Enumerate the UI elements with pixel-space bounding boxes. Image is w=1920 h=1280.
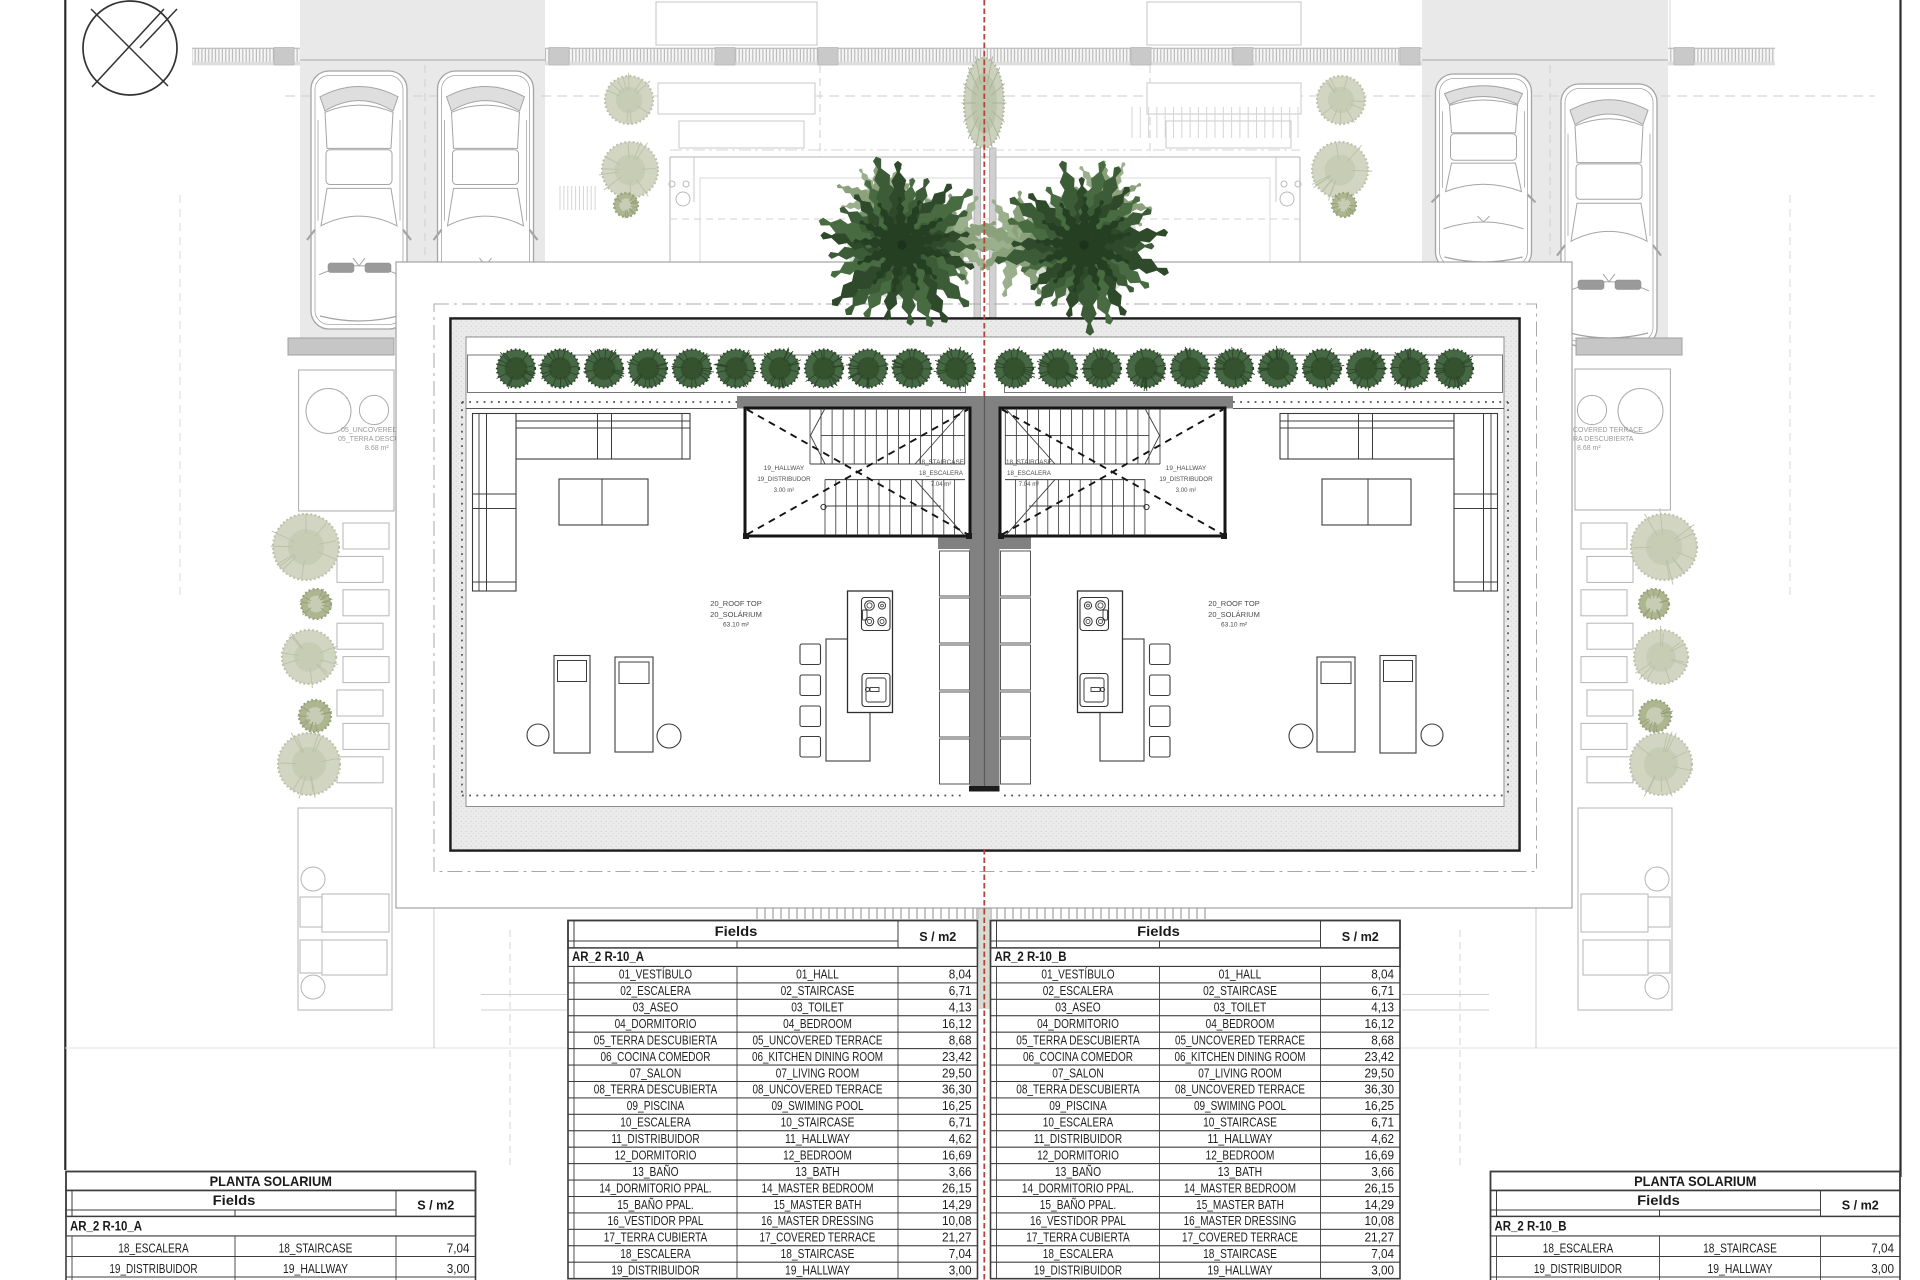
svg-text:11_DISTRIBUIDOR: 11_DISTRIBUIDOR <box>1034 1132 1122 1146</box>
svg-text:19_DISTRIBUIDOR: 19_DISTRIBUIDOR <box>1034 1263 1122 1277</box>
svg-text:S / m2: S / m2 <box>1342 929 1379 944</box>
svg-text:17_TERRA CUBIERTA: 17_TERRA CUBIERTA <box>1026 1231 1130 1245</box>
svg-text:6,71: 6,71 <box>1371 1116 1394 1130</box>
svg-text:03_TOILET: 03_TOILET <box>791 1001 844 1015</box>
svg-text:16,12: 16,12 <box>942 1017 972 1031</box>
svg-text:18_ESCALERA: 18_ESCALERA <box>118 1241 189 1255</box>
svg-text:19_DISTRIBUDOR: 19_DISTRIBUDOR <box>1159 476 1213 483</box>
svg-text:19_HALLWAY: 19_HALLWAY <box>764 465 805 472</box>
svg-text:8.68 m²: 8.68 m² <box>365 445 389 452</box>
svg-text:6,71: 6,71 <box>1371 984 1394 998</box>
svg-text:14,29: 14,29 <box>942 1198 972 1212</box>
svg-text:08_TERRA DESCUBIERTA: 08_TERRA DESCUBIERTA <box>1016 1083 1140 1097</box>
svg-text:3,66: 3,66 <box>1371 1165 1394 1179</box>
svg-text:7,04: 7,04 <box>949 1247 972 1261</box>
svg-text:7,04: 7,04 <box>1371 1247 1394 1261</box>
svg-text:36,30: 36,30 <box>1365 1083 1395 1097</box>
svg-text:14_MASTER BEDROOM: 14_MASTER BEDROOM <box>1184 1181 1296 1195</box>
svg-text:16,69: 16,69 <box>1365 1148 1395 1162</box>
svg-text:29,50: 29,50 <box>1365 1066 1395 1080</box>
svg-text:7,04: 7,04 <box>1871 1241 1894 1255</box>
svg-text:26,15: 26,15 <box>1365 1181 1395 1195</box>
svg-text:10_STAIRCASE: 10_STAIRCASE <box>1203 1116 1277 1130</box>
svg-text:23,42: 23,42 <box>942 1050 972 1064</box>
svg-text:10_ESCALERA: 10_ESCALERA <box>1043 1116 1114 1130</box>
svg-text:05_UNCOVERED TERRACE: 05_UNCOVERED TERRACE <box>1175 1033 1305 1047</box>
svg-text:04_DORMITORIO: 04_DORMITORIO <box>615 1017 697 1031</box>
svg-text:20_ROOF TOP: 20_ROOF TOP <box>1208 599 1259 608</box>
svg-text:19_DISTRIBUIDOR: 19_DISTRIBUIDOR <box>611 1263 699 1277</box>
svg-text:8,04: 8,04 <box>949 968 972 982</box>
svg-text:15_BAÑO PPAL.: 15_BAÑO PPAL. <box>1040 1198 1116 1212</box>
svg-text:01_VESTÍBULO: 01_VESTÍBULO <box>1041 967 1114 982</box>
svg-text:09_PISCINA: 09_PISCINA <box>1049 1099 1107 1113</box>
svg-text:8.68 m²: 8.68 m² <box>1577 445 1601 452</box>
svg-text:11_HALLWAY: 11_HALLWAY <box>785 1132 851 1146</box>
svg-text:10_ESCALERA: 10_ESCALERA <box>620 1116 691 1130</box>
svg-text:7,04: 7,04 <box>447 1241 470 1255</box>
svg-text:4,62: 4,62 <box>1371 1132 1394 1146</box>
svg-text:16_VESTIDOR PPAL: 16_VESTIDOR PPAL <box>608 1214 704 1228</box>
svg-text:02_STAIRCASE: 02_STAIRCASE <box>781 984 855 998</box>
svg-text:17_TERRA CUBIERTA: 17_TERRA CUBIERTA <box>604 1231 708 1245</box>
svg-text:02_STAIRCASE: 02_STAIRCASE <box>1203 984 1277 998</box>
svg-text:09_SWIMING POOL: 09_SWIMING POOL <box>1194 1099 1286 1113</box>
svg-text:36,30: 36,30 <box>942 1083 972 1097</box>
svg-text:18_ESCALERA: 18_ESCALERA <box>1543 1241 1614 1255</box>
svg-text:63.10 m²: 63.10 m² <box>723 622 750 629</box>
svg-text:18_STAIRCASE: 18_STAIRCASE <box>1703 1241 1777 1255</box>
svg-text:02_ESCALERA: 02_ESCALERA <box>1043 984 1114 998</box>
svg-text:10,08: 10,08 <box>942 1214 972 1228</box>
svg-text:01_HALL: 01_HALL <box>1219 968 1262 982</box>
svg-text:17_COVERED TERRACE: 17_COVERED TERRACE <box>1182 1231 1298 1245</box>
svg-text:16,69: 16,69 <box>942 1148 972 1162</box>
svg-text:15_MASTER BATH: 15_MASTER BATH <box>774 1198 862 1212</box>
svg-text:08_UNCOVERED TERRACE: 08_UNCOVERED TERRACE <box>753 1083 883 1097</box>
svg-text:3.00 m²: 3.00 m² <box>1176 488 1197 494</box>
svg-text:07_LIVING ROOM: 07_LIVING ROOM <box>1198 1066 1281 1080</box>
svg-text:26,15: 26,15 <box>942 1181 972 1195</box>
svg-text:18_STAIRCASE: 18_STAIRCASE <box>918 459 964 466</box>
svg-text:18_ESCALERA: 18_ESCALERA <box>1043 1247 1114 1261</box>
svg-text:8,04: 8,04 <box>1371 968 1394 982</box>
svg-text:11_HALLWAY: 11_HALLWAY <box>1208 1132 1274 1146</box>
svg-text:AR_2 R-10_B: AR_2 R-10_B <box>1495 1219 1567 1234</box>
svg-text:08_TERRA DESCUBIERTA: 08_TERRA DESCUBIERTA <box>594 1083 718 1097</box>
svg-text:7.04 m²: 7.04 m² <box>1019 482 1040 488</box>
svg-text:03_ASEO: 03_ASEO <box>633 1001 679 1015</box>
svg-text:29,50: 29,50 <box>942 1066 972 1080</box>
svg-text:04_DORMITORIO: 04_DORMITORIO <box>1037 1017 1119 1031</box>
svg-text:12_BEDROOM: 12_BEDROOM <box>783 1148 852 1162</box>
svg-text:13_BAÑO: 13_BAÑO <box>1055 1165 1101 1179</box>
svg-text:23,42: 23,42 <box>1365 1050 1395 1064</box>
svg-text:16,25: 16,25 <box>1365 1099 1395 1113</box>
svg-text:4,62: 4,62 <box>949 1132 972 1146</box>
svg-text:10_STAIRCASE: 10_STAIRCASE <box>781 1116 855 1130</box>
svg-text:19_HALLWAY: 19_HALLWAY <box>1166 465 1207 472</box>
svg-text:11_DISTRIBUIDOR: 11_DISTRIBUIDOR <box>611 1132 699 1146</box>
svg-text:05_UNCOVERED TERRACE: 05_UNCOVERED TERRACE <box>753 1033 883 1047</box>
svg-text:06_COCINA COMEDOR: 06_COCINA COMEDOR <box>1023 1050 1133 1064</box>
svg-text:01_HALL: 01_HALL <box>796 968 839 982</box>
svg-text:18_ESCALERA: 18_ESCALERA <box>919 470 963 477</box>
svg-text:19_DISTRIBUIDOR: 19_DISTRIBUIDOR <box>109 1262 197 1276</box>
svg-text:12_BEDROOM: 12_BEDROOM <box>1206 1148 1275 1162</box>
svg-text:Fields: Fields <box>1637 1193 1680 1208</box>
svg-text:09_PISCINA: 09_PISCINA <box>627 1099 685 1113</box>
svg-text:03_ASEO: 03_ASEO <box>1055 1001 1101 1015</box>
svg-text:8,68: 8,68 <box>949 1033 972 1047</box>
svg-text:3,00: 3,00 <box>1871 1262 1894 1276</box>
svg-text:14_DORMITORIO PPAL.: 14_DORMITORIO PPAL. <box>1022 1181 1134 1195</box>
svg-text:14_MASTER BEDROOM: 14_MASTER BEDROOM <box>761 1181 873 1195</box>
svg-text:Fields: Fields <box>715 924 758 939</box>
svg-text:S / m2: S / m2 <box>1842 1198 1879 1213</box>
svg-text:PLANTA SOLARIUM: PLANTA SOLARIUM <box>210 1173 332 1189</box>
svg-text:06_KITCHEN DINING ROOM: 06_KITCHEN DINING ROOM <box>1174 1050 1305 1064</box>
svg-text:15_BAÑO PPAL.: 15_BAÑO PPAL. <box>617 1198 693 1212</box>
svg-text:12_DORMITORIO: 12_DORMITORIO <box>1037 1148 1119 1162</box>
svg-text:16,12: 16,12 <box>1365 1017 1395 1031</box>
svg-text:Fields: Fields <box>1137 924 1180 939</box>
svg-text:18_ESCALERA: 18_ESCALERA <box>1007 470 1051 477</box>
svg-text:Fields: Fields <box>213 1193 256 1208</box>
svg-text:19_HALLWAY: 19_HALLWAY <box>283 1262 349 1276</box>
svg-text:18_STAIRCASE: 18_STAIRCASE <box>781 1247 855 1261</box>
svg-text:3,00: 3,00 <box>447 1262 470 1276</box>
svg-text:20_SOLÁRIUM: 20_SOLÁRIUM <box>1208 610 1260 619</box>
svg-text:16_VESTIDOR PPAL: 16_VESTIDOR PPAL <box>1030 1214 1126 1228</box>
svg-text:AR_2 R-10_A: AR_2 R-10_A <box>70 1219 142 1234</box>
svg-text:COVERED TERRACE: COVERED TERRACE <box>1573 427 1643 434</box>
svg-text:01_VESTÍBULO: 01_VESTÍBULO <box>619 967 692 982</box>
svg-text:18_STAIRCASE: 18_STAIRCASE <box>1006 459 1052 466</box>
svg-text:3,00: 3,00 <box>1371 1263 1394 1277</box>
svg-text:12_DORMITORIO: 12_DORMITORIO <box>615 1148 697 1162</box>
svg-text:RA DESCUBIERTA: RA DESCUBIERTA <box>1573 436 1634 443</box>
svg-text:7.04 m²: 7.04 m² <box>931 482 952 488</box>
svg-text:3,66: 3,66 <box>949 1165 972 1179</box>
svg-text:06_COCINA COMEDOR: 06_COCINA COMEDOR <box>601 1050 711 1064</box>
svg-text:10,08: 10,08 <box>1365 1214 1395 1228</box>
svg-text:4,13: 4,13 <box>1371 1001 1394 1015</box>
svg-text:6,71: 6,71 <box>949 984 972 998</box>
svg-text:16,25: 16,25 <box>942 1099 972 1113</box>
svg-text:03_TOILET: 03_TOILET <box>1214 1001 1267 1015</box>
svg-text:21,27: 21,27 <box>942 1231 972 1245</box>
svg-text:13_BATH: 13_BATH <box>1218 1165 1262 1179</box>
svg-text:63.10 m²: 63.10 m² <box>1221 622 1248 629</box>
svg-text:S / m2: S / m2 <box>919 929 956 944</box>
svg-text:13_BAÑO: 13_BAÑO <box>632 1165 678 1179</box>
svg-text:07_SALON: 07_SALON <box>630 1066 682 1080</box>
svg-text:04_BEDROOM: 04_BEDROOM <box>1206 1017 1275 1031</box>
svg-text:3,00: 3,00 <box>949 1263 972 1277</box>
svg-text:18_STAIRCASE: 18_STAIRCASE <box>1203 1247 1277 1261</box>
svg-text:13_BATH: 13_BATH <box>795 1165 839 1179</box>
svg-text:16_MASTER DRESSING: 16_MASTER DRESSING <box>1184 1214 1297 1228</box>
svg-text:04_BEDROOM: 04_BEDROOM <box>783 1017 852 1031</box>
svg-text:20_SOLÁRIUM: 20_SOLÁRIUM <box>710 610 762 619</box>
svg-text:4,13: 4,13 <box>949 1001 972 1015</box>
svg-text:20_ROOF TOP: 20_ROOF TOP <box>710 599 761 608</box>
svg-text:05_TERRA DESCUB: 05_TERRA DESCUB <box>338 436 404 443</box>
svg-text:6,71: 6,71 <box>949 1116 972 1130</box>
svg-text:19_HALLWAY: 19_HALLWAY <box>785 1263 851 1277</box>
svg-text:07_LIVING ROOM: 07_LIVING ROOM <box>776 1066 859 1080</box>
svg-text:17_COVERED TERRACE: 17_COVERED TERRACE <box>760 1231 876 1245</box>
svg-text:02_ESCALERA: 02_ESCALERA <box>620 984 691 998</box>
svg-text:21,27: 21,27 <box>1365 1231 1395 1245</box>
svg-text:05_TERRA DESCUBIERTA: 05_TERRA DESCUBIERTA <box>1016 1033 1140 1047</box>
svg-text:PLANTA SOLARIUM: PLANTA SOLARIUM <box>1634 1173 1756 1189</box>
svg-text:19_HALLWAY: 19_HALLWAY <box>1708 1262 1774 1276</box>
svg-text:09_SWIMING POOL: 09_SWIMING POOL <box>771 1099 863 1113</box>
svg-text:3.00 m²: 3.00 m² <box>774 488 795 494</box>
svg-text:06_KITCHEN DINING ROOM: 06_KITCHEN DINING ROOM <box>752 1050 883 1064</box>
svg-text:19_DISTRIBUIDOR: 19_DISTRIBUIDOR <box>1534 1262 1622 1276</box>
svg-text:08_UNCOVERED TERRACE: 08_UNCOVERED TERRACE <box>1175 1083 1305 1097</box>
svg-text:14,29: 14,29 <box>1365 1198 1395 1212</box>
svg-text:AR_2 R-10_B: AR_2 R-10_B <box>995 949 1067 964</box>
svg-text:19_HALLWAY: 19_HALLWAY <box>1208 1263 1274 1277</box>
svg-text:07_SALON: 07_SALON <box>1052 1066 1104 1080</box>
svg-text:8,68: 8,68 <box>1371 1033 1394 1047</box>
svg-text:19_DISTRIBUDOR: 19_DISTRIBUDOR <box>757 476 811 483</box>
svg-text:18_ESCALERA: 18_ESCALERA <box>620 1247 691 1261</box>
svg-text:05_TERRA DESCUBIERTA: 05_TERRA DESCUBIERTA <box>594 1033 718 1047</box>
svg-text:S / m2: S / m2 <box>417 1198 454 1213</box>
svg-text:AR_2 R-10_A: AR_2 R-10_A <box>572 949 644 964</box>
svg-text:16_MASTER DRESSING: 16_MASTER DRESSING <box>761 1214 874 1228</box>
svg-text:18_STAIRCASE: 18_STAIRCASE <box>279 1241 353 1255</box>
svg-text:15_MASTER BATH: 15_MASTER BATH <box>1196 1198 1284 1212</box>
svg-text:14_DORMITORIO PPAL.: 14_DORMITORIO PPAL. <box>599 1181 711 1195</box>
